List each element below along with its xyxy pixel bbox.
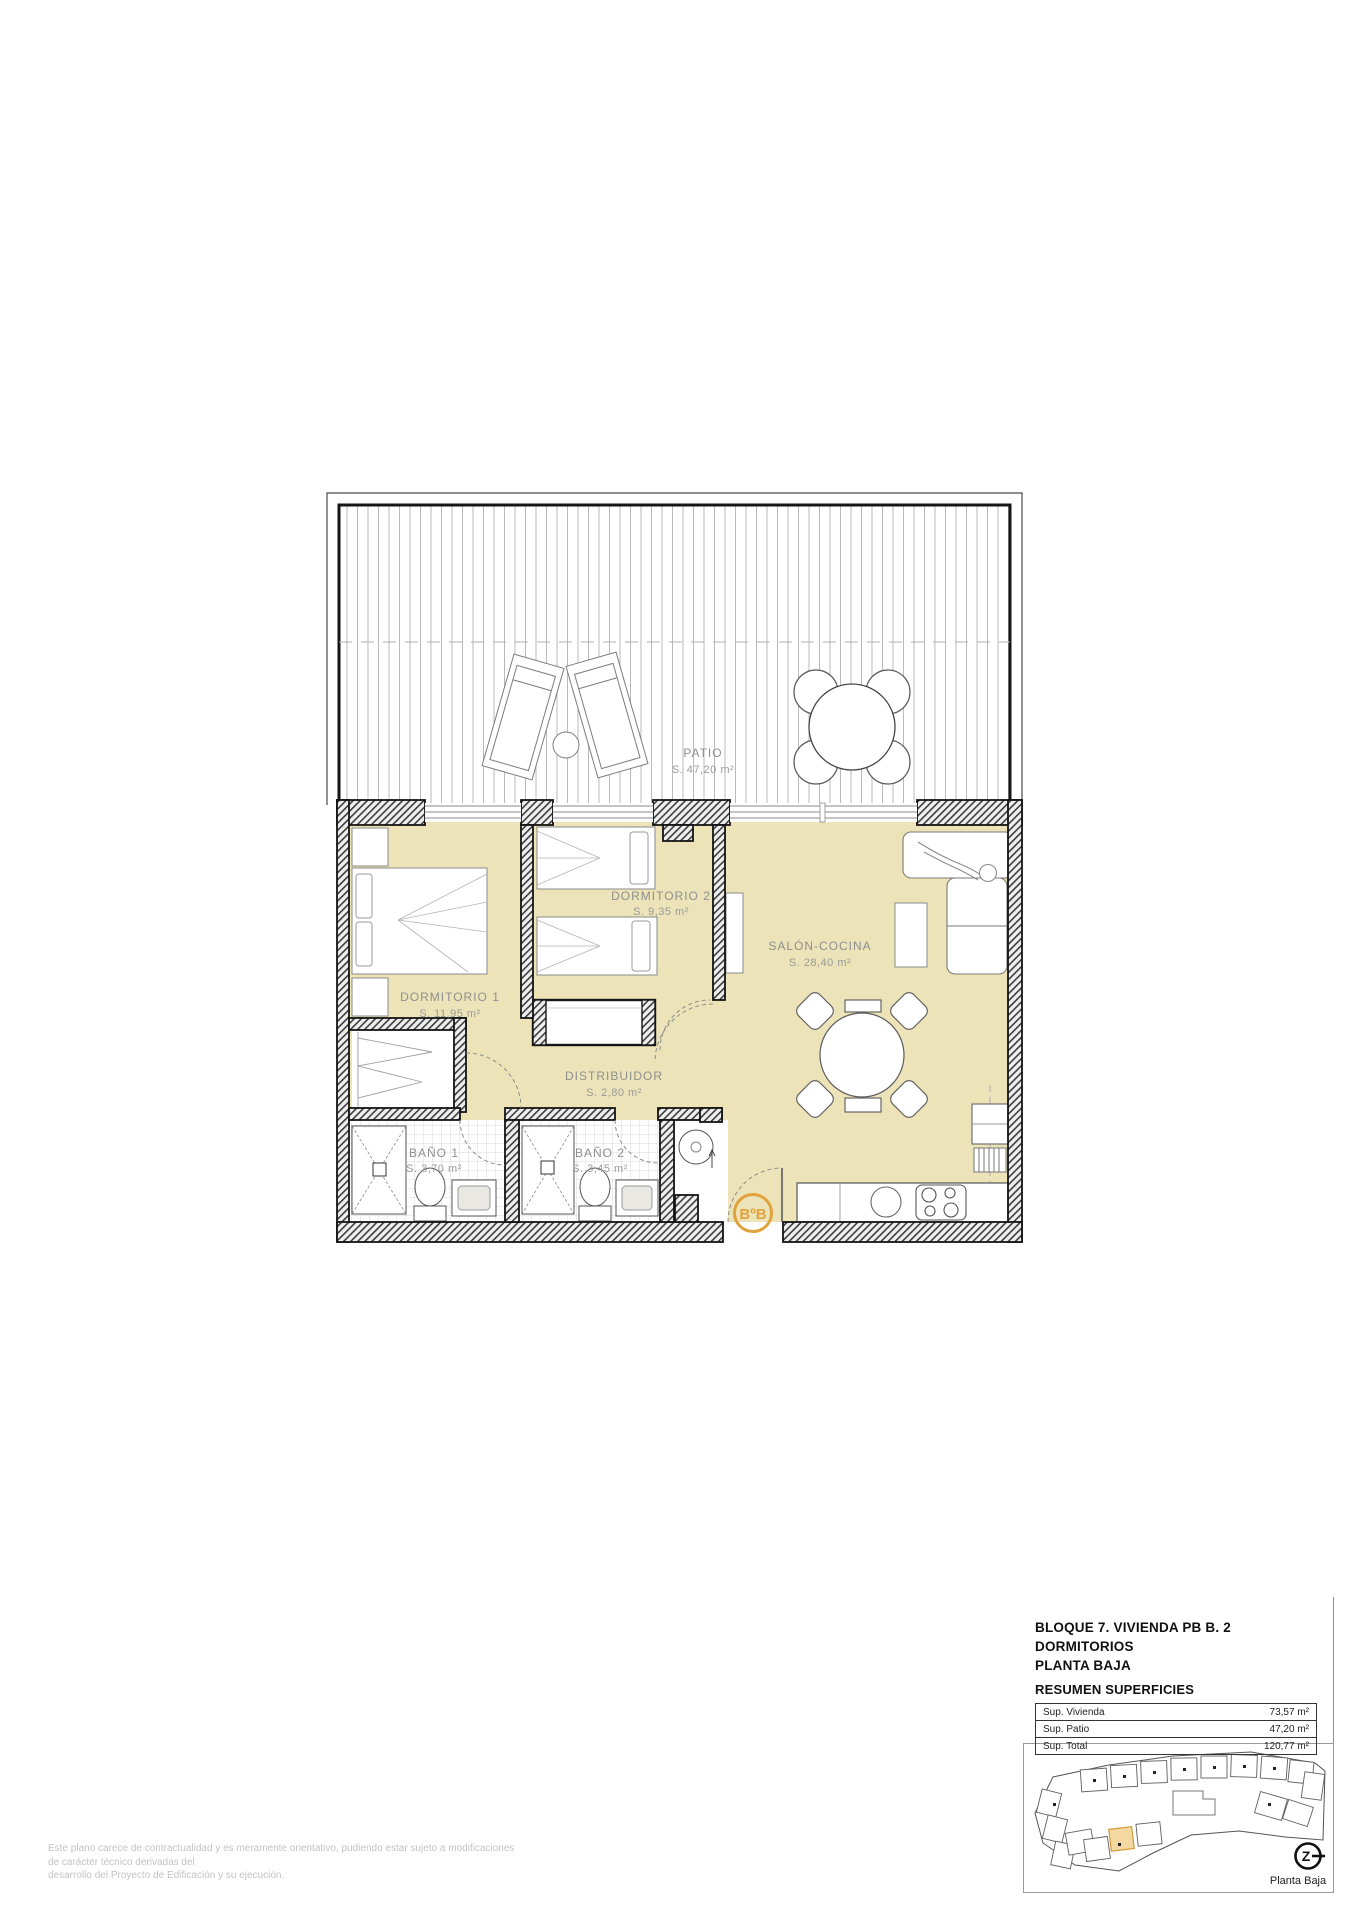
surface-summary-table: Sup. Vivienda 73,57 m² Sup. Patio 47,20 …	[1035, 1703, 1317, 1755]
distribuidor-area-label: S. 2,80 m²	[586, 1087, 642, 1099]
disclaimer-text: Este plano carece de contractualidad y e…	[48, 1842, 528, 1883]
patio-area: PATIO S. 47,20 m²	[327, 493, 1022, 805]
row-value: 73,57 m²	[1193, 1704, 1316, 1721]
dorm1-area-label: S. 11,95 m²	[419, 1008, 481, 1020]
row-label: Sup. Total	[1036, 1738, 1194, 1755]
kitchen-sink	[871, 1187, 901, 1217]
kitchen-counter	[797, 1183, 1008, 1222]
dorm1-label: DORMITORIO 1	[400, 990, 500, 1004]
salon-area-label: S. 28,40 m²	[789, 957, 851, 969]
patio-area-label: S. 47,20 m²	[672, 764, 734, 776]
row-value: 120,77 m²	[1193, 1738, 1316, 1755]
title-block: BLOQUE 7. VIVIENDA PB B. 2 DORMITORIOS P…	[1035, 1618, 1317, 1755]
disclaimer-line-1: Este plano carece de contractualidad y e…	[48, 1842, 528, 1869]
compass-letter: Z	[1302, 1848, 1311, 1864]
title-line-3: RESUMEN SUPERFICIES	[1035, 1682, 1317, 1697]
bano1-label: BAÑO 1	[409, 1146, 459, 1160]
coffee-table	[895, 903, 927, 967]
entry-badge-text: BºB	[739, 1206, 766, 1223]
dorm2-area-label: S. 9,35 m²	[633, 906, 689, 918]
closet-nook-floor	[352, 1030, 454, 1110]
row-label: Sup. Patio	[1036, 1721, 1194, 1738]
stove	[916, 1185, 966, 1220]
tv-sideboard	[726, 893, 743, 973]
title-line-1: BLOQUE 7. VIVIENDA PB B. 2 DORMITORIOS	[1035, 1618, 1317, 1656]
highlighted-unit	[1109, 1827, 1135, 1852]
distribuidor-label: DISTRIBUIDOR	[565, 1069, 663, 1083]
table-row: Sup. Total 120,77 m²	[1036, 1738, 1317, 1755]
disclaimer-line-2: desarrollo del Proyecto de Edificación y…	[48, 1869, 528, 1883]
site-plan-caption: Planta Baja	[1270, 1875, 1327, 1887]
window-salon	[730, 803, 917, 822]
patio-label: PATIO	[683, 746, 722, 760]
built-in-wardrobe	[533, 1000, 655, 1045]
row-label: Sup. Vivienda	[1036, 1704, 1194, 1721]
pantry-unit	[974, 1148, 1006, 1172]
window-dorm1	[425, 803, 521, 822]
window-dorm2	[553, 803, 653, 822]
bano2-area-label: S. 3,45 m²	[572, 1163, 628, 1175]
toilet-tank-2	[579, 1206, 611, 1221]
table-row: Sup. Vivienda 73,57 m²	[1036, 1704, 1317, 1721]
floor-plan-sheet: PATIO S. 47,20 m²	[0, 0, 1358, 1920]
salon-label: SALÓN-COCINA	[768, 938, 871, 953]
outdoor-dining-set	[794, 670, 910, 784]
row-value: 47,20 m²	[1193, 1721, 1316, 1738]
dorm2-label: DORMITORIO 2	[611, 889, 711, 903]
patio-side-table	[553, 732, 579, 758]
site-plan-map: Z Planta Baja	[1024, 1744, 1334, 1893]
toilet-tank-1	[414, 1206, 446, 1221]
bano2-label: BAÑO 2	[575, 1146, 625, 1160]
title-line-2: PLANTA BAJA	[1035, 1656, 1317, 1675]
table-row: Sup. Patio 47,20 m²	[1036, 1721, 1317, 1738]
bano1-area-label: S. 3,70 m²	[406, 1163, 462, 1175]
